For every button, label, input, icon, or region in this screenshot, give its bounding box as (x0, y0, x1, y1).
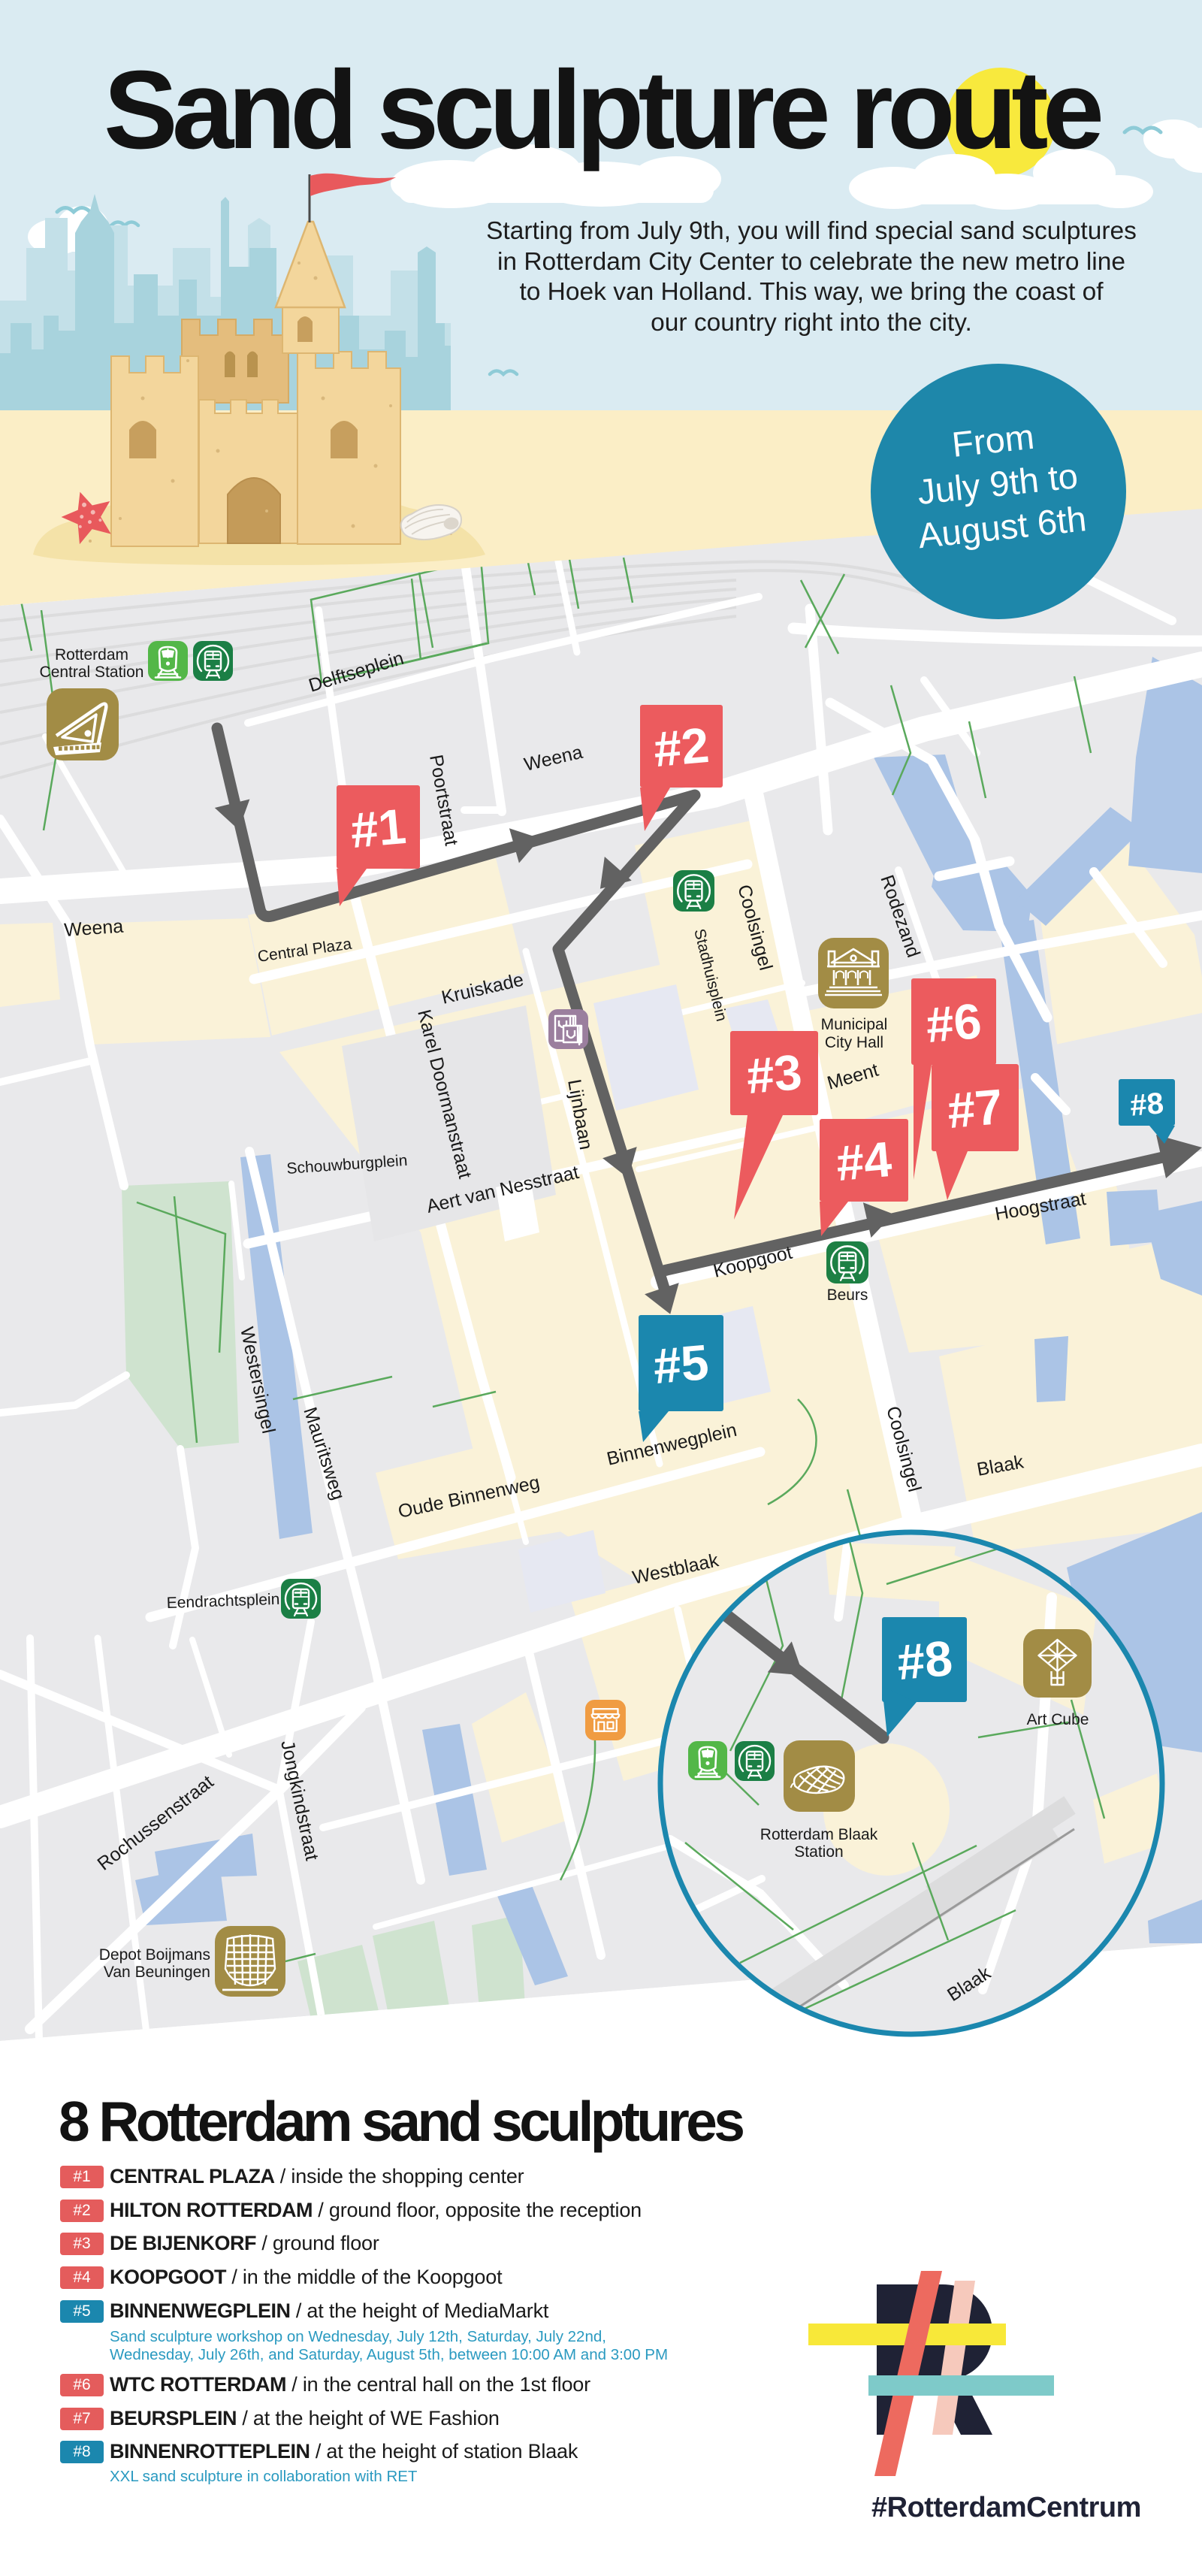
svg-text:Central Station: Central Station (40, 664, 144, 681)
svg-text:#5: #5 (651, 1334, 711, 1394)
svg-text:Rotterdam: Rotterdam (55, 646, 128, 664)
svg-text:Rotterdam Blaak: Rotterdam Blaak (760, 1826, 878, 1843)
svg-text:#3: #3 (744, 1044, 805, 1104)
svg-text:#7: #7 (945, 1078, 1005, 1138)
svg-text:#8: #8 (895, 1630, 955, 1690)
svg-text:Municipal: Municipal (821, 1016, 888, 1033)
svg-text:Van Beuningen: Van Beuningen (104, 1964, 210, 1981)
svg-text:#1: #1 (349, 798, 409, 858)
svg-text:Depot Boijmans: Depot Boijmans (99, 1946, 210, 1964)
svg-text:#4: #4 (834, 1131, 894, 1191)
svg-text:#2: #2 (651, 717, 711, 777)
svg-text:#RotterdamCentrum: #RotterdamCentrum (871, 2492, 1141, 2523)
svg-text:City Hall: City Hall (825, 1034, 883, 1051)
svg-text:Beurs: Beurs (827, 1286, 868, 1304)
svg-text:#6: #6 (924, 993, 984, 1053)
svg-text:Weena: Weena (63, 916, 124, 941)
svg-text:Art Cube: Art Cube (1027, 1711, 1089, 1728)
svg-text:Station: Station (794, 1843, 843, 1861)
svg-text:#8: #8 (1129, 1087, 1165, 1123)
